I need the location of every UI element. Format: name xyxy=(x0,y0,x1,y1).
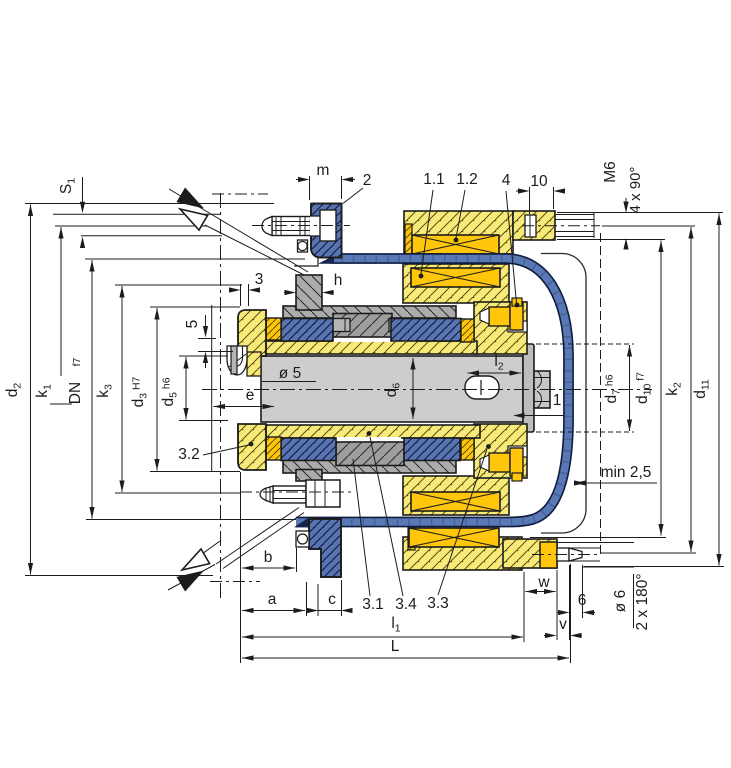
svg-text:5: 5 xyxy=(184,320,201,329)
svg-text:3.2: 3.2 xyxy=(178,446,200,463)
svg-text:3.4: 3.4 xyxy=(395,596,417,613)
svg-text:m: m xyxy=(317,162,330,179)
svg-text:4 x 90°: 4 x 90° xyxy=(627,167,644,214)
svg-text:L: L xyxy=(391,638,400,655)
svg-text:c: c xyxy=(328,591,336,608)
svg-text:M6: M6 xyxy=(602,161,619,183)
svg-text:v: v xyxy=(559,616,567,633)
svg-text:f7: f7 xyxy=(71,357,83,366)
svg-text:4: 4 xyxy=(502,172,511,189)
svg-text:2: 2 xyxy=(363,172,372,189)
svg-text:min 2,5: min 2,5 xyxy=(601,464,652,481)
svg-text:a: a xyxy=(268,591,277,608)
svg-text:3.1: 3.1 xyxy=(362,596,384,613)
svg-text:b: b xyxy=(264,549,273,566)
svg-text:h: h xyxy=(334,272,343,289)
svg-text:2 x 180°: 2 x 180° xyxy=(634,573,651,630)
svg-text:ø 5: ø 5 xyxy=(279,365,301,382)
svg-text:10: 10 xyxy=(530,173,548,190)
svg-text:DN: DN xyxy=(67,382,84,404)
svg-text:ø 6: ø 6 xyxy=(612,590,629,612)
svg-text:1.2: 1.2 xyxy=(456,171,478,188)
svg-text:1: 1 xyxy=(553,392,562,409)
svg-text:6: 6 xyxy=(578,592,587,609)
svg-text:3.3: 3.3 xyxy=(427,595,449,612)
svg-text:w: w xyxy=(537,574,550,591)
svg-text:1.1: 1.1 xyxy=(423,171,445,188)
svg-text:3: 3 xyxy=(255,271,264,288)
